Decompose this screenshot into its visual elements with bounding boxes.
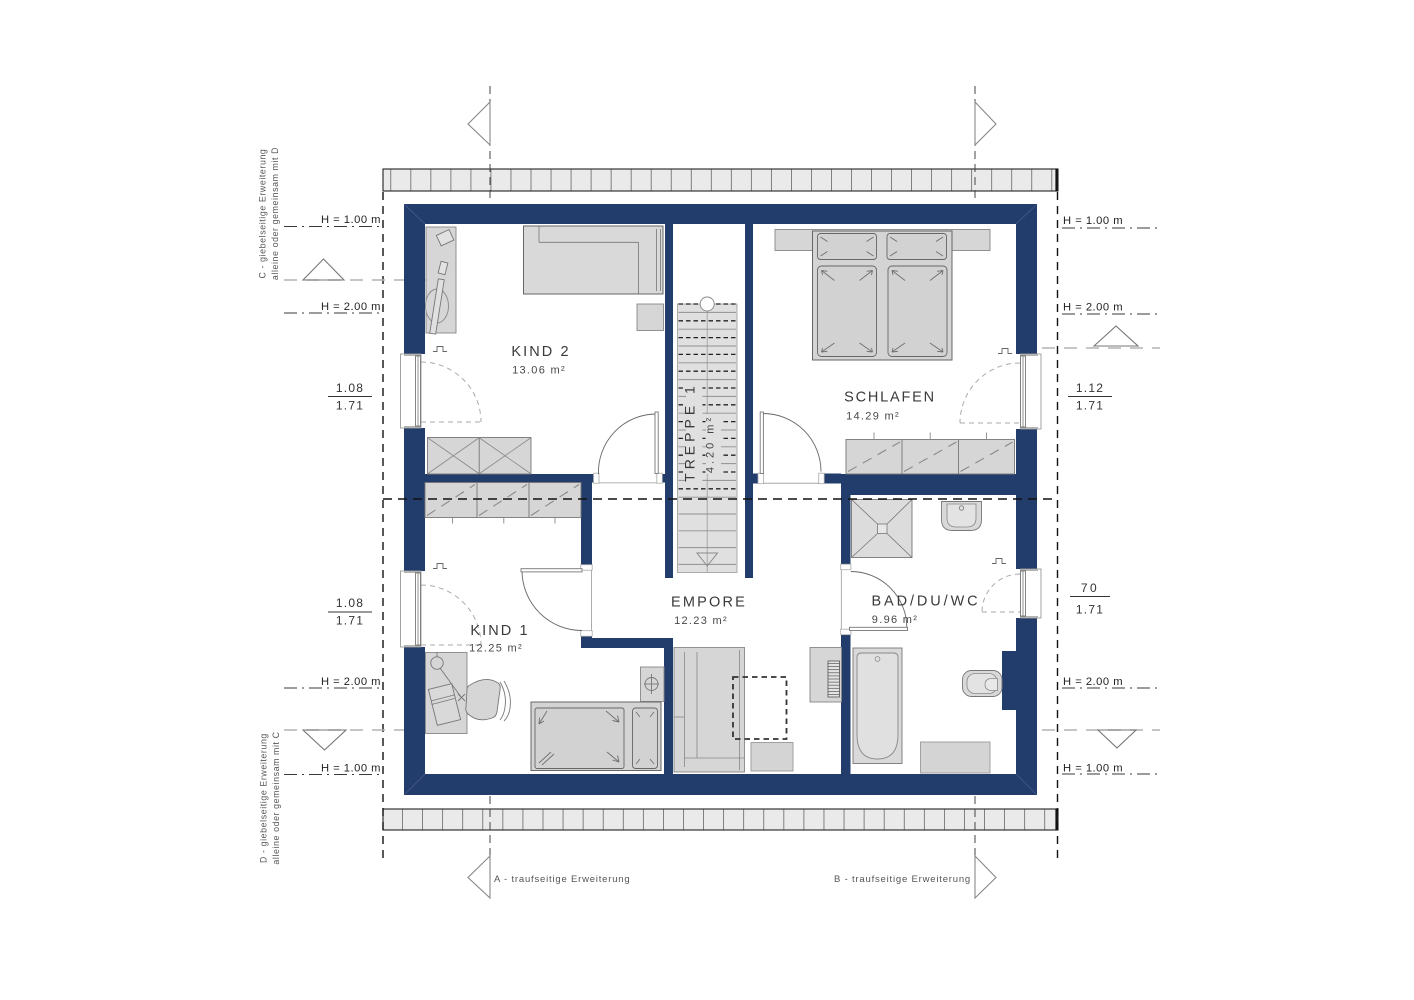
svg-text:1.71: 1.71	[336, 399, 364, 413]
svg-text:H = 2.00 m: H = 2.00 m	[321, 301, 381, 313]
svg-text:C - giebelseitige Erweiterung: C - giebelseitige Erweiterung	[258, 149, 268, 279]
svg-text:KIND 1: KIND 1	[470, 623, 529, 639]
svg-text:13.06 m²: 13.06 m²	[512, 365, 566, 377]
svg-text:KIND 2: KIND 2	[511, 344, 570, 360]
svg-text:H = 2.00 m: H = 2.00 m	[1063, 676, 1123, 688]
svg-text:SCHLAFEN: SCHLAFEN	[844, 390, 936, 406]
svg-text:4.20 m²: 4.20 m²	[705, 415, 717, 473]
svg-text:alleine oder gemeinsam mit C: alleine oder gemeinsam mit C	[271, 731, 281, 864]
svg-text:1.71: 1.71	[1076, 399, 1104, 413]
svg-text:H = 1.00 m: H = 1.00 m	[321, 214, 381, 226]
svg-text:1.08: 1.08	[336, 596, 364, 610]
svg-text:9.96 m²: 9.96 m²	[872, 614, 918, 626]
svg-text:1.71: 1.71	[336, 614, 364, 628]
svg-text:BAD/DU/WC: BAD/DU/WC	[871, 594, 980, 610]
svg-text:H = 1.00 m: H = 1.00 m	[321, 763, 381, 775]
svg-text:H = 2.00 m: H = 2.00 m	[321, 676, 381, 688]
svg-text:H = 1.00 m: H = 1.00 m	[1063, 215, 1123, 227]
svg-text:12.23 m²: 12.23 m²	[674, 615, 728, 627]
svg-text:B - traufseitige Erweiterung: B - traufseitige Erweiterung	[834, 874, 971, 885]
svg-text:D - giebelseitige Erweiterung: D - giebelseitige Erweiterung	[259, 733, 269, 863]
svg-text:TREPPE 1: TREPPE 1	[682, 382, 698, 482]
svg-text:1.71: 1.71	[1076, 603, 1104, 617]
svg-text:A - traufseitige Erweiterung: A - traufseitige Erweiterung	[494, 874, 630, 885]
svg-text:H = 1.00 m: H = 1.00 m	[1063, 763, 1123, 775]
svg-text:H = 2.00 m: H = 2.00 m	[1063, 302, 1123, 314]
svg-text:1.12: 1.12	[1076, 381, 1104, 395]
svg-text:alleine oder gemeinsam mit D: alleine oder gemeinsam mit D	[270, 147, 280, 280]
svg-text:70: 70	[1081, 581, 1099, 595]
svg-text:EMPORE: EMPORE	[671, 595, 747, 611]
svg-text:1.08: 1.08	[336, 381, 364, 395]
svg-text:14.29 m²: 14.29 m²	[846, 411, 900, 423]
svg-text:12.25 m²: 12.25 m²	[469, 643, 523, 655]
